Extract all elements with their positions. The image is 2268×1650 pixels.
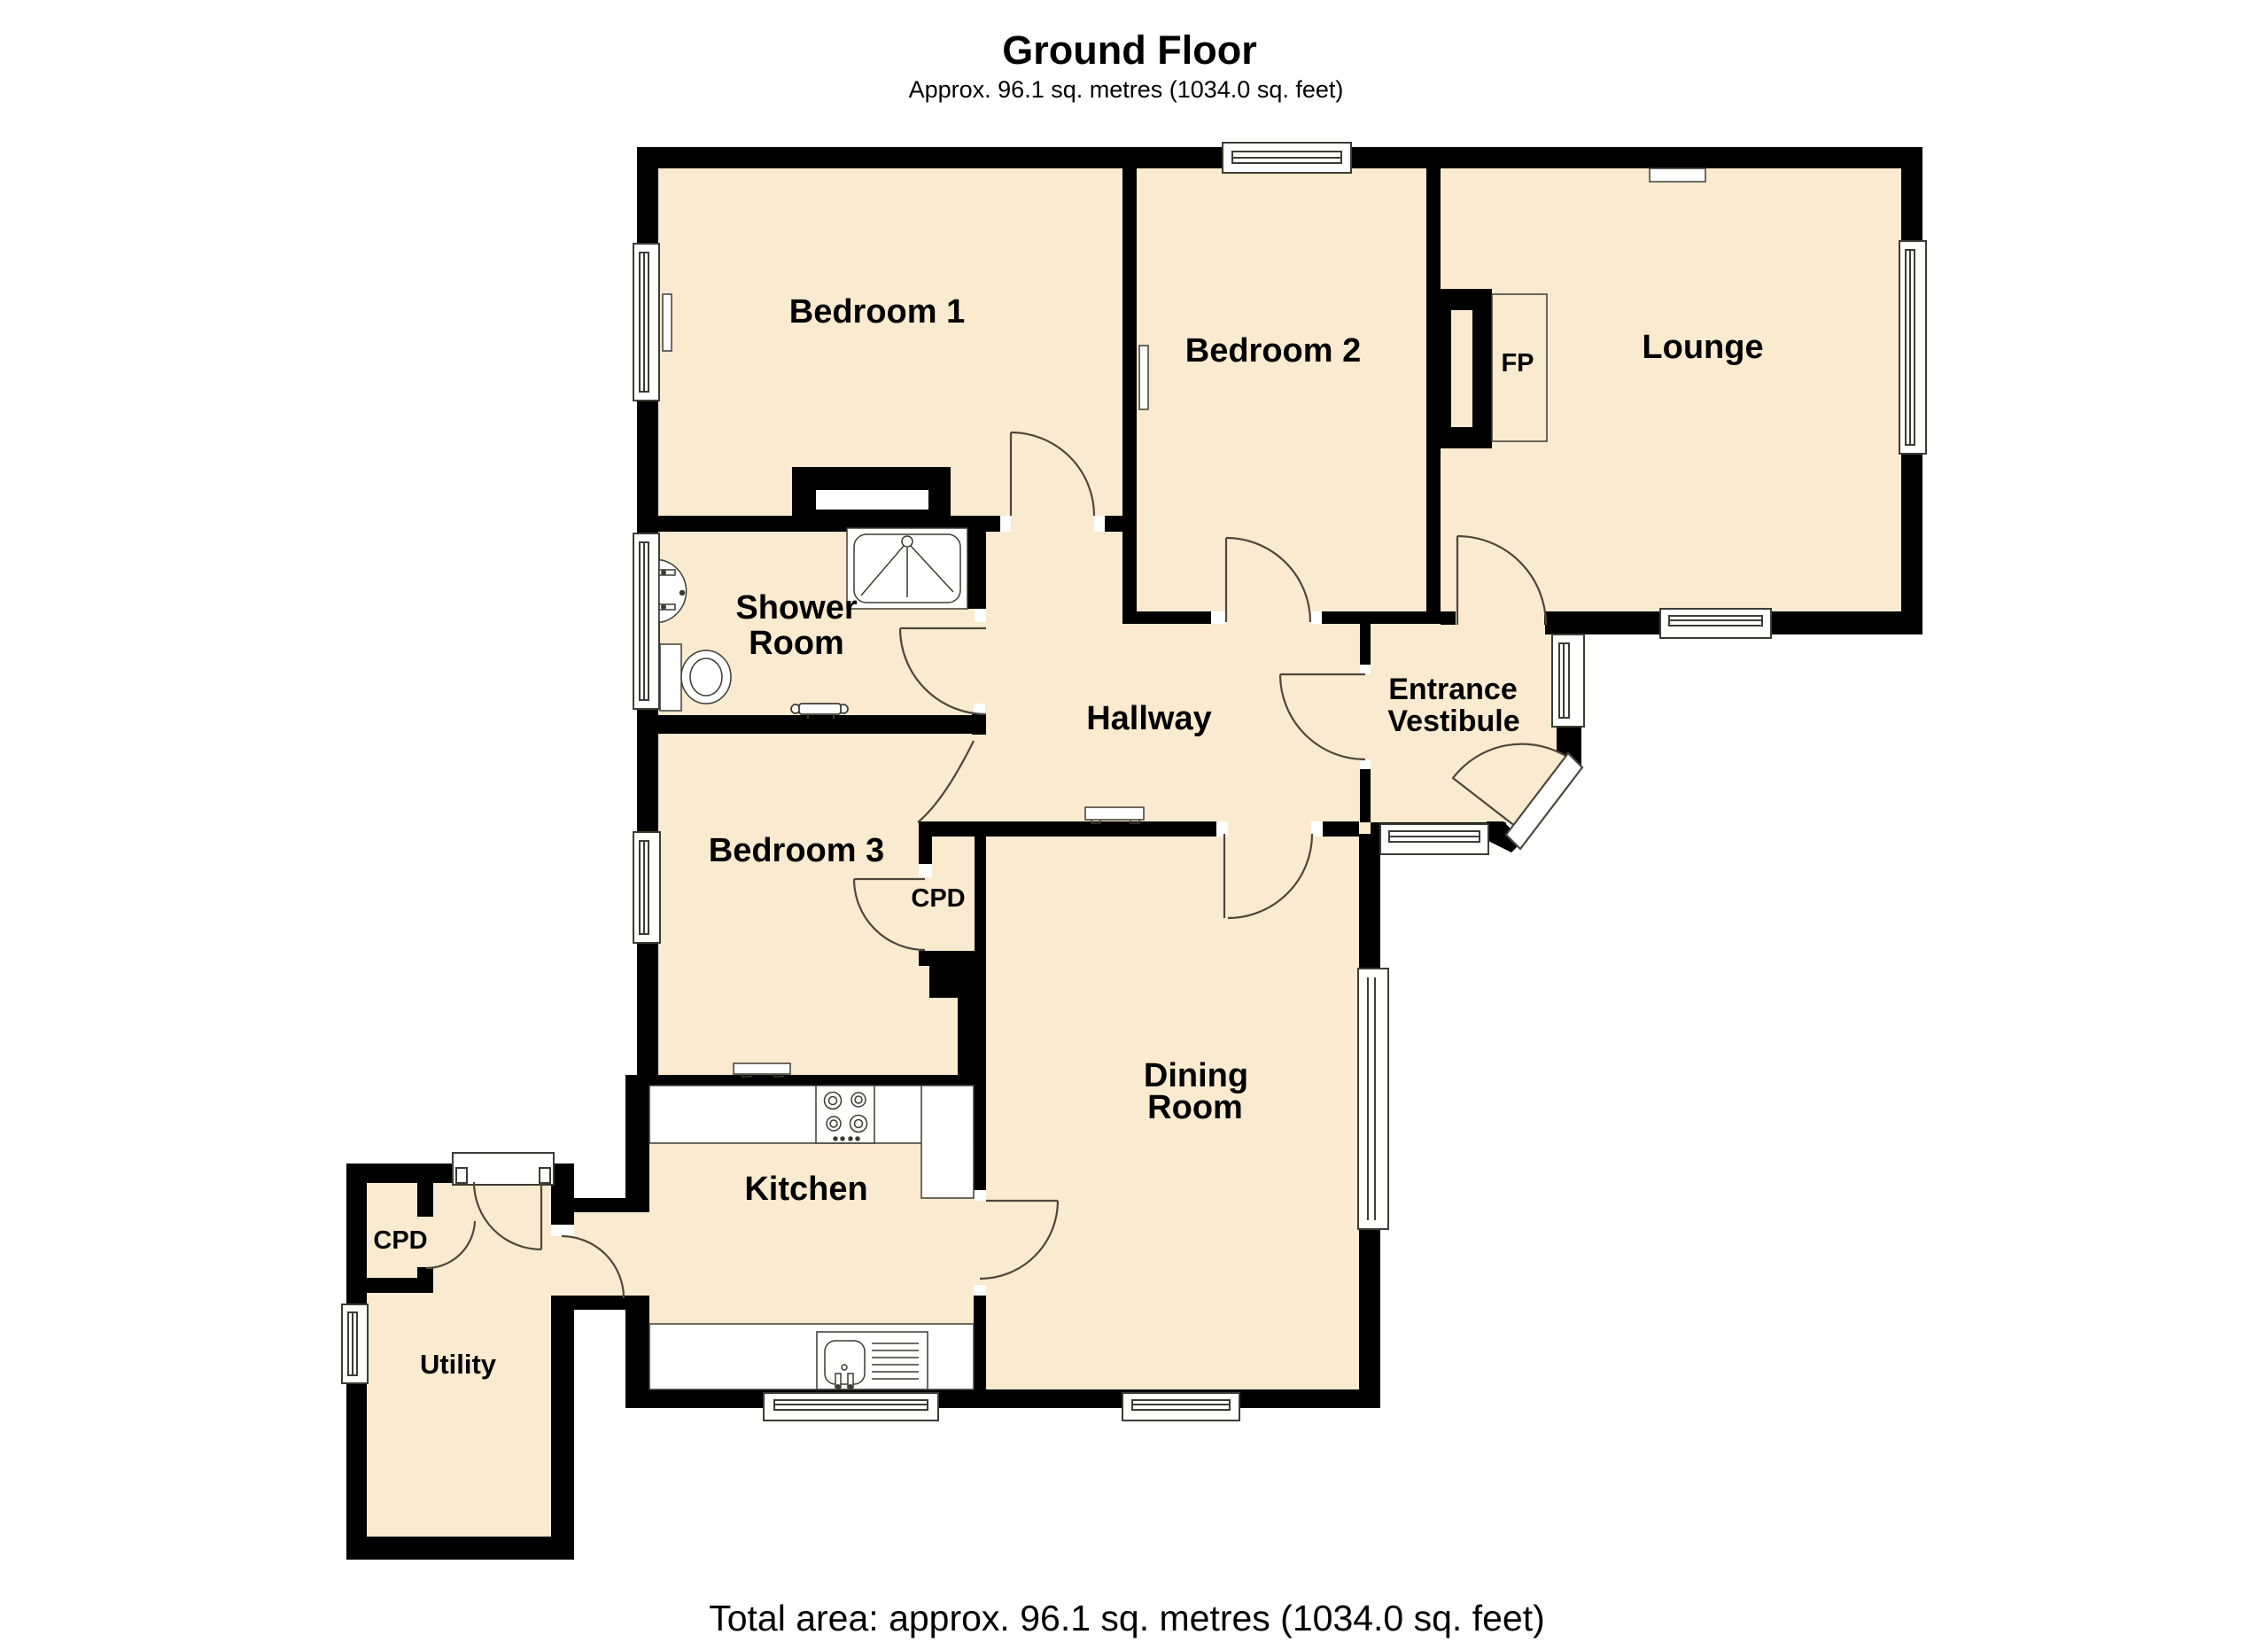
svg-text:Kitchen: Kitchen — [744, 1171, 867, 1208]
svg-text:Ground Floor: Ground Floor — [1002, 27, 1256, 73]
svg-text:Total area: approx. 96.1 sq. m: Total area: approx. 96.1 sq. metres (103… — [709, 1598, 1545, 1638]
svg-text:Vestibule: Vestibule — [1387, 704, 1519, 738]
svg-text:Entrance: Entrance — [1388, 673, 1518, 706]
svg-text:Room: Room — [749, 625, 844, 662]
svg-text:Bedroom 1: Bedroom 1 — [789, 293, 965, 331]
svg-text:Room: Room — [1147, 1089, 1243, 1126]
svg-text:Lounge: Lounge — [1642, 329, 1763, 366]
svg-text:FP: FP — [1501, 349, 1534, 377]
svg-text:Approx. 96.1 sq. metres (1034.: Approx. 96.1 sq. metres (1034.0 sq. feet… — [909, 76, 1344, 103]
svg-text:CPD: CPD — [911, 884, 965, 913]
svg-text:Shower: Shower — [735, 589, 857, 627]
svg-text:CPD: CPD — [373, 1226, 427, 1255]
svg-text:Hallway: Hallway — [1086, 700, 1212, 737]
svg-text:Bedroom 3: Bedroom 3 — [709, 832, 884, 869]
svg-text:Bedroom 2: Bedroom 2 — [1185, 332, 1361, 370]
svg-text:Utility: Utility — [420, 1349, 497, 1380]
